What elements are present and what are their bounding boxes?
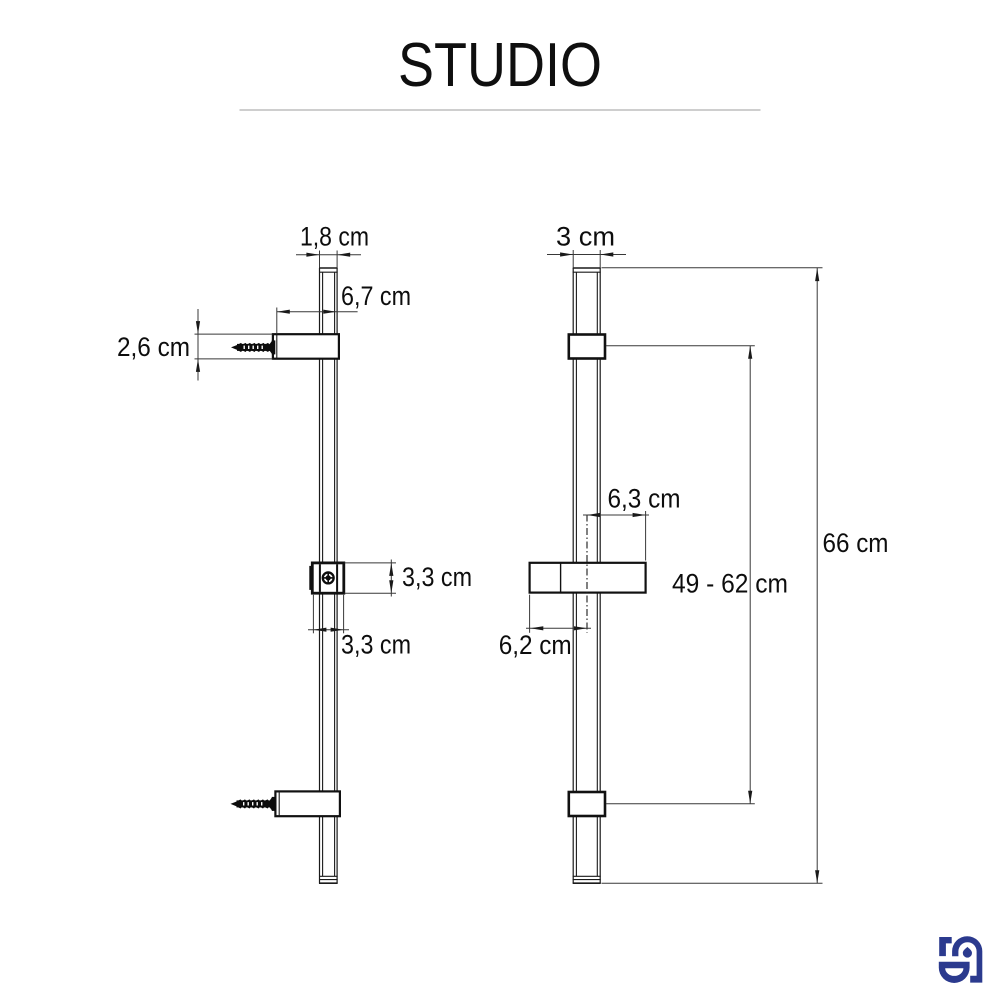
svg-text:66 cm: 66 cm (823, 528, 889, 558)
svg-text:2,6 cm: 2,6 cm (117, 332, 190, 362)
svg-text:6,3 cm: 6,3 cm (608, 483, 681, 513)
svg-text:3 cm: 3 cm (556, 221, 615, 251)
svg-text:6,7 cm: 6,7 cm (341, 281, 411, 311)
svg-text:STUDIO: STUDIO (398, 30, 602, 100)
svg-text:3,3 cm: 3,3 cm (341, 630, 411, 660)
svg-text:3,3 cm: 3,3 cm (402, 562, 472, 592)
svg-text:6,2 cm: 6,2 cm (499, 630, 572, 660)
svg-text:49 - 62 cm: 49 - 62 cm (672, 568, 788, 598)
svg-text:1,8 cm: 1,8 cm (300, 221, 369, 251)
